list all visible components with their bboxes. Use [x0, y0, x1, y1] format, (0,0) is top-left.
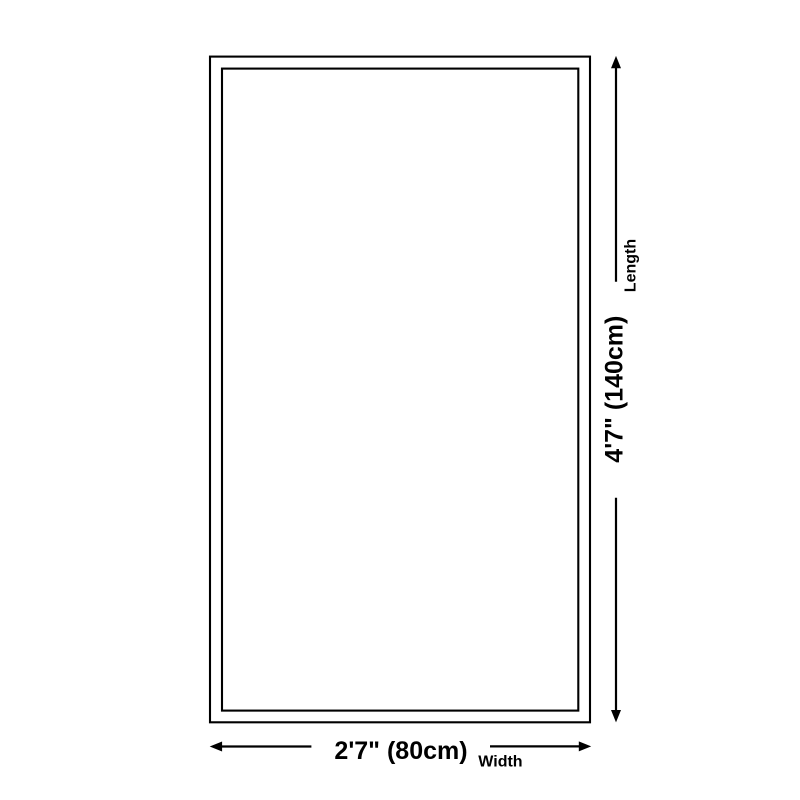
svg-text:Width: Width — [478, 754, 522, 771]
svg-text:Length: Length — [622, 239, 639, 292]
svg-text:2'7" (80cm): 2'7" (80cm) — [334, 737, 467, 765]
svg-text:4'7" (140cm): 4'7" (140cm) — [600, 316, 628, 463]
